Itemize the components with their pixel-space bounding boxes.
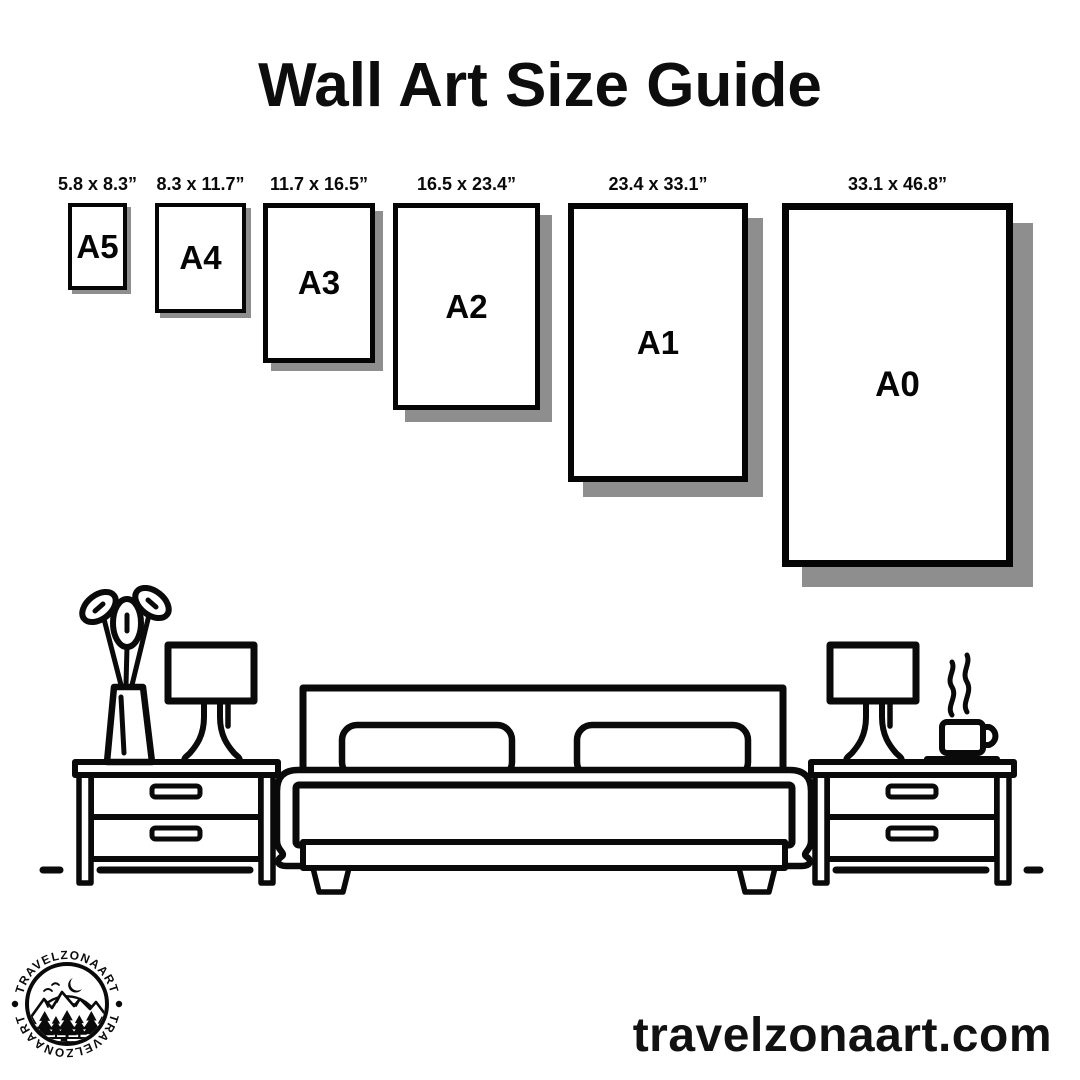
size-item-a0: 33.1 x 46.8” A0 [782,203,1013,567]
table-lamp-left [168,645,254,762]
bird-icon [52,983,59,985]
bed-leg-left [313,868,349,892]
bedroom-illustration [0,585,1080,895]
bed-illustration [277,688,811,892]
size-dimensions-label: 33.1 x 46.8” [848,174,947,195]
paper-a3: A3 [263,203,375,363]
coffee-cup [927,655,997,759]
cup-body [942,722,983,753]
vase-with-plant [77,585,175,762]
website-url: travelzonaart.com [0,1008,1052,1063]
size-dimensions-label: 11.7 x 16.5” [270,174,368,195]
size-item-a4: 8.3 x 11.7” A4 [155,203,246,313]
paper-a5: A5 [68,203,127,290]
nightstand-left [75,762,278,883]
size-dimensions-label: 5.8 x 8.3” [58,174,137,195]
size-item-a2: 16.5 x 23.4” A2 [393,203,540,410]
bed-base [303,842,785,868]
size-dimensions-label: 16.5 x 23.4” [417,174,516,195]
size-item-a3: 11.7 x 16.5” A3 [263,203,375,363]
size-dimensions-label: 8.3 x 11.7” [156,174,244,195]
bird-icon [44,989,52,991]
size-dimensions-label: 23.4 x 33.1” [608,174,707,195]
size-guide-poster: Wall Art Size Guide 5.8 x 8.3” A5 8.3 x … [0,0,1080,1080]
page-title: Wall Art Size Guide [0,52,1080,120]
logo-dot-left [12,1001,18,1007]
size-item-a5: 5.8 x 8.3” A5 [68,203,127,290]
size-item-a1: 23.4 x 33.1” A1 [568,203,748,482]
logo-dot-right [116,1001,122,1007]
paper-a0: A0 [782,203,1013,567]
table-lamp-right [830,645,916,762]
mattress-front [296,785,792,845]
steam [965,655,969,712]
paper-a4: A4 [155,203,246,313]
paper-a2: A2 [393,203,540,410]
paper-a1: A1 [568,203,748,482]
steam [950,662,954,715]
bed-leg-right [739,868,775,892]
nightstand-right [811,762,1014,883]
moon-icon [68,978,82,993]
